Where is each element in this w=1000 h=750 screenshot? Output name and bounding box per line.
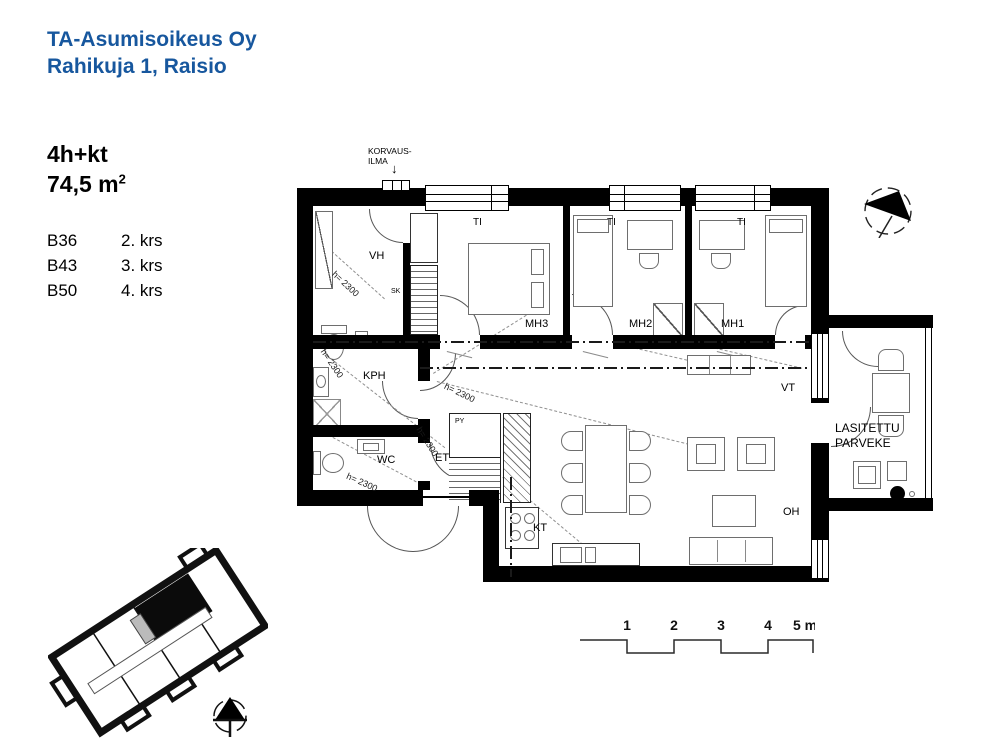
lounge-chair bbox=[853, 461, 881, 489]
balcony-window-arc bbox=[842, 331, 878, 367]
entry-threshold bbox=[423, 496, 469, 498]
door-arc bbox=[775, 305, 805, 335]
chair bbox=[639, 253, 659, 269]
scale-tick: 4 bbox=[764, 617, 772, 633]
room-label-mh2: MH2 bbox=[629, 319, 652, 330]
entry-door-arc bbox=[367, 506, 459, 552]
unit-id: B50 bbox=[47, 281, 121, 301]
area-exponent: 2 bbox=[119, 171, 126, 186]
wall bbox=[418, 481, 430, 490]
window bbox=[811, 539, 829, 579]
company-header: TA-Asumisoikeus Oy Rahikuja 1, Raisio bbox=[47, 26, 257, 80]
toilet-tank bbox=[313, 451, 321, 475]
wall bbox=[563, 206, 570, 339]
closet bbox=[410, 213, 438, 263]
unit-id: B36 bbox=[47, 231, 121, 251]
double-bed bbox=[468, 243, 550, 315]
scale-tick: 5 m bbox=[793, 617, 815, 633]
chair bbox=[561, 463, 583, 483]
wall bbox=[418, 349, 430, 381]
section-line bbox=[313, 341, 809, 343]
room-label-mh1: MH1 bbox=[721, 319, 744, 330]
shelved-closet bbox=[410, 265, 438, 335]
room-label-vh: VH bbox=[369, 251, 384, 262]
unit-row: B504. krs bbox=[47, 281, 163, 301]
wardrobe bbox=[653, 303, 683, 337]
chair bbox=[561, 431, 583, 451]
north-arrow-icon bbox=[858, 178, 918, 238]
chair bbox=[629, 495, 651, 515]
wardrobe bbox=[694, 303, 724, 337]
wall bbox=[469, 490, 499, 506]
section-line bbox=[420, 367, 809, 369]
unit-row: B433. krs bbox=[47, 256, 163, 276]
apartment-area: 74,5 m2 bbox=[47, 171, 126, 198]
sideboard bbox=[687, 355, 751, 375]
wall bbox=[685, 206, 692, 339]
small-drain bbox=[909, 491, 915, 497]
balcony-wall bbox=[829, 315, 933, 328]
floorplan-sheet: { "header": { "company": "TA-Asumisoikeu… bbox=[0, 0, 1000, 750]
unit-id: B43 bbox=[47, 256, 121, 276]
scale-tick: 3 bbox=[717, 617, 725, 633]
window bbox=[609, 185, 681, 211]
window-label-ti: TI bbox=[737, 217, 746, 228]
balcony-door-opening bbox=[811, 403, 829, 443]
dining-table bbox=[585, 425, 627, 513]
kitchen-sink-counter bbox=[552, 543, 640, 566]
room-label-kph: KPH bbox=[363, 371, 386, 382]
side-table bbox=[887, 461, 907, 481]
toilet-tank bbox=[321, 325, 347, 334]
unit-floor: 3. krs bbox=[121, 256, 163, 275]
scale-tick: 1 bbox=[623, 617, 631, 633]
ceiling-height-label: h= 2300 bbox=[443, 381, 477, 404]
window bbox=[811, 333, 829, 399]
unit-floor: 2. krs bbox=[121, 231, 163, 250]
supply-air-label: KORVAUS- ILMA bbox=[368, 147, 412, 166]
unit-floor: 4. krs bbox=[121, 281, 163, 300]
room-label-py: PY bbox=[455, 418, 464, 425]
key-plan bbox=[48, 548, 268, 748]
window bbox=[695, 185, 771, 211]
chair bbox=[711, 253, 731, 269]
armchair bbox=[687, 437, 725, 471]
room-label-vt: VT bbox=[781, 383, 795, 394]
room-label-kt: KT bbox=[533, 523, 547, 534]
wall bbox=[483, 506, 499, 566]
toilet-bowl bbox=[322, 453, 344, 473]
address-line: Rahikuja 1, Raisio bbox=[47, 53, 257, 80]
bed bbox=[573, 215, 613, 307]
section-line bbox=[510, 477, 512, 577]
room-label-wc: WC bbox=[377, 455, 395, 466]
coffee-table bbox=[712, 495, 756, 527]
tall-cabinet bbox=[503, 413, 531, 503]
window-label-ti: TI bbox=[607, 217, 616, 228]
window bbox=[425, 185, 509, 211]
chair bbox=[629, 431, 651, 451]
wall bbox=[403, 243, 410, 335]
room-label-oh: OH bbox=[783, 507, 800, 518]
wall bbox=[483, 566, 829, 582]
down-arrow-icon: ↓ bbox=[391, 161, 398, 176]
door-arc bbox=[369, 209, 403, 243]
sink bbox=[357, 439, 385, 454]
wall bbox=[297, 490, 423, 506]
balcony-glazing bbox=[925, 328, 932, 498]
room-label-mh3: MH3 bbox=[525, 319, 548, 330]
floor-plan: h= 2300 h= 2300 h= 2300 h= 2300 h= 2300 … bbox=[297, 185, 937, 600]
balcony-table bbox=[872, 373, 910, 413]
window-label-ti: TI bbox=[473, 217, 482, 228]
chair bbox=[878, 349, 904, 371]
balcony-wall bbox=[829, 498, 933, 511]
room-label-sk: SK bbox=[391, 288, 400, 295]
supply-air-vent bbox=[382, 180, 410, 191]
unit-row: B362. krs bbox=[47, 231, 163, 251]
armchair bbox=[737, 437, 775, 471]
room-label-et: ET bbox=[435, 453, 449, 464]
scale-tick: 2 bbox=[670, 617, 678, 633]
chair bbox=[629, 463, 651, 483]
apartment-type: 4h+kt bbox=[47, 141, 108, 168]
room-label-balcony: LASITETTU PARVEKE bbox=[835, 421, 900, 451]
wall bbox=[313, 425, 418, 437]
company-name: TA-Asumisoikeus Oy bbox=[47, 26, 257, 53]
hatch-tick bbox=[583, 351, 608, 358]
chair bbox=[561, 495, 583, 515]
scale-bar: 1 2 3 4 5 m bbox=[575, 612, 815, 660]
desk bbox=[627, 220, 673, 250]
bed bbox=[765, 215, 807, 307]
sofa bbox=[689, 537, 773, 565]
sink-basin bbox=[316, 375, 326, 388]
